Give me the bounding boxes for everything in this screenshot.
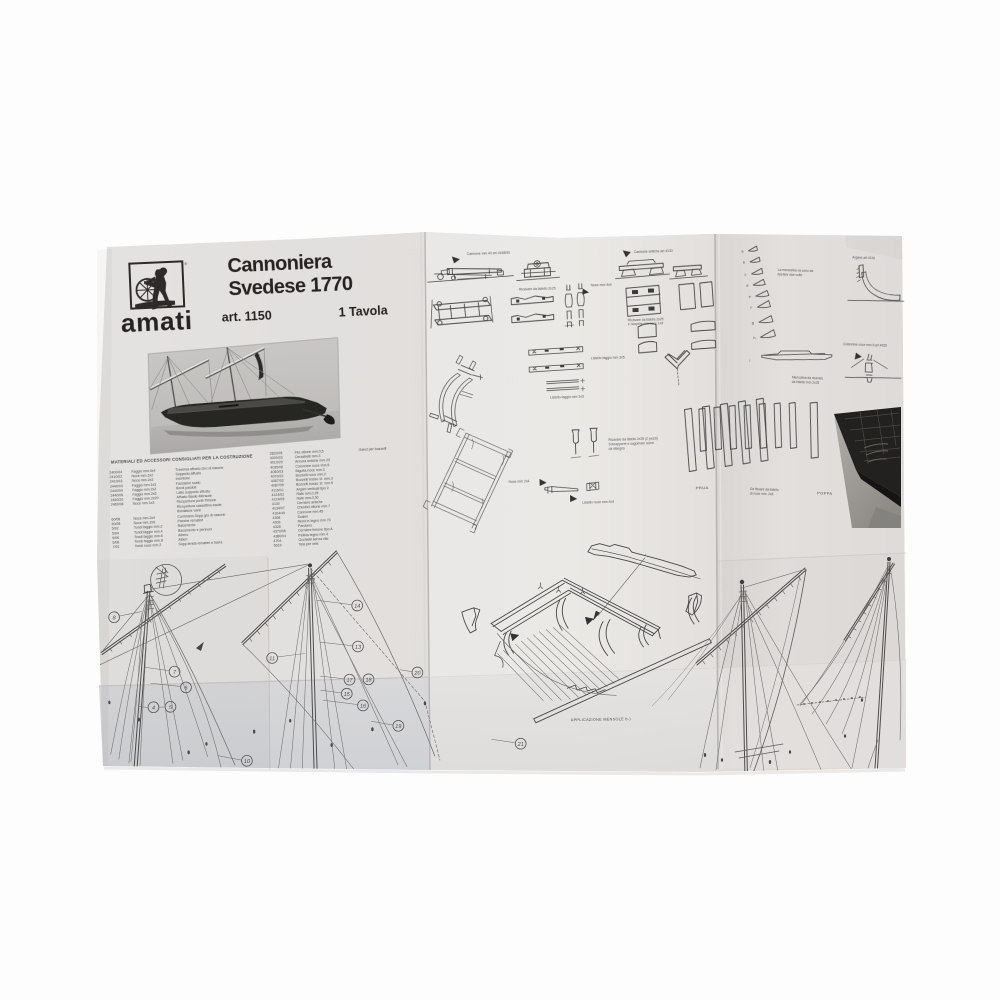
svg-text:d: d	[746, 284, 748, 288]
svg-text:11: 11	[269, 656, 275, 662]
svg-text:4164/45: 4164/45	[272, 511, 285, 516]
svg-text:4380/04: 4380/04	[273, 534, 286, 539]
svg-text:20: 20	[413, 671, 421, 677]
svg-text:16: 16	[360, 704, 367, 710]
svg-text:4124/05: 4124/05	[272, 497, 285, 502]
svg-text:17: 17	[346, 678, 353, 684]
svg-text:art. 1150: art. 1150	[221, 309, 272, 325]
svg-text:21: 21	[517, 742, 524, 748]
svg-text:h: h	[753, 336, 755, 340]
svg-text:a: a	[741, 250, 743, 254]
svg-text:18: 18	[365, 677, 372, 683]
svg-text:da disegno: da disegno	[609, 446, 625, 450]
svg-text:PRUA: PRUA	[696, 485, 709, 490]
svg-text:f: f	[750, 306, 751, 310]
svg-text:di noce mm. 2x6: di noce mm. 2x6	[750, 491, 774, 496]
svg-text:4: 4	[152, 705, 155, 711]
svg-text:5/02: 5/02	[112, 527, 119, 531]
svg-text:10: 10	[244, 759, 251, 765]
svg-text:Noce mm 4x4: Noce mm 4x4	[591, 283, 612, 288]
svg-text:19: 19	[395, 724, 401, 730]
svg-text:POPPA: POPPA	[817, 490, 833, 496]
svg-text:b: b	[743, 261, 745, 265]
svg-text:5619: 5619	[274, 543, 282, 547]
svg-text:7/02: 7/02	[113, 545, 120, 549]
svg-text:13: 13	[355, 645, 362, 651]
svg-text:Argano art 4116: Argano art 4116	[852, 255, 875, 260]
svg-text:Cannoniera: Cannoniera	[227, 251, 333, 278]
svg-text:®: ®	[184, 261, 187, 266]
svg-text:e: e	[749, 295, 751, 299]
svg-text:60/08: 60/08	[112, 522, 121, 526]
svg-text:amati: amati	[120, 305, 193, 338]
svg-text:g: g	[752, 321, 754, 325]
svg-text:14: 14	[354, 604, 360, 610]
svg-text:2460/08: 2460/08	[111, 502, 124, 507]
svg-text:Noce mm 2x4: Noce mm 2x4	[509, 479, 530, 484]
svg-text:5/06: 5/06	[112, 536, 119, 540]
svg-text:15: 15	[344, 692, 351, 698]
svg-text:1 Tavola: 1 Tavola	[338, 303, 389, 319]
